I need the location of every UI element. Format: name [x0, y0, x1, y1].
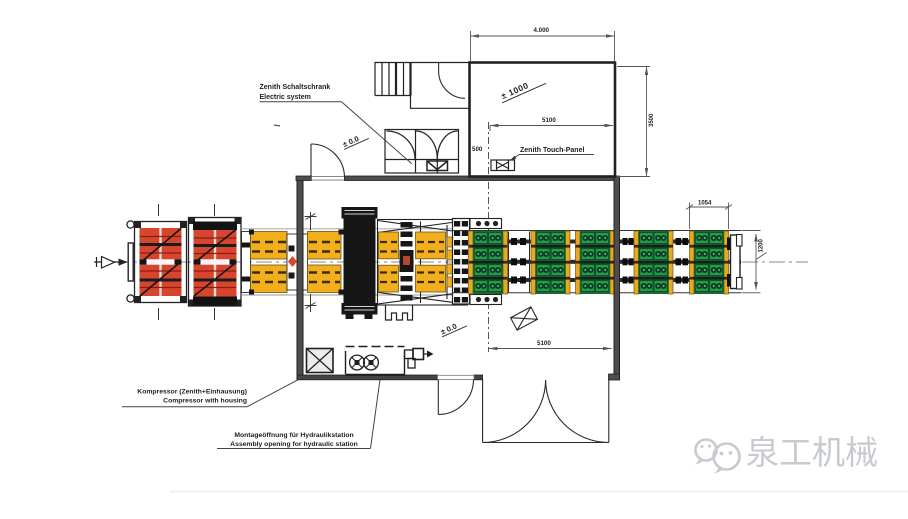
svg-text:5100: 5100	[537, 340, 551, 347]
svg-text:Montageöffnung für Hydraulikst: Montageöffnung für Hydraulikstation	[234, 432, 353, 439]
svg-text:Zenith Touch-Panel: Zenith Touch-Panel	[520, 147, 584, 154]
svg-text:3500: 3500	[649, 113, 655, 127]
svg-text:Electric system: Electric system	[260, 94, 311, 101]
svg-text:1054: 1054	[698, 201, 712, 207]
svg-text:Assembly opening for hydraulic: Assembly opening for hydraulic station	[230, 441, 358, 448]
svg-text:4.000: 4.000	[534, 27, 550, 34]
svg-text:Zenith Schaltschrank: Zenith Schaltschrank	[260, 84, 331, 91]
svg-text:泉工机械: 泉工机械	[746, 434, 878, 471]
svg-text:500: 500	[472, 146, 483, 153]
svg-text:5100: 5100	[542, 117, 556, 124]
svg-text:Compressor with housing: Compressor with housing	[163, 398, 247, 405]
svg-text:1200: 1200	[759, 238, 765, 252]
svg-text:Kompressor (Zenith+Einhausung): Kompressor (Zenith+Einhausung)	[137, 389, 247, 396]
